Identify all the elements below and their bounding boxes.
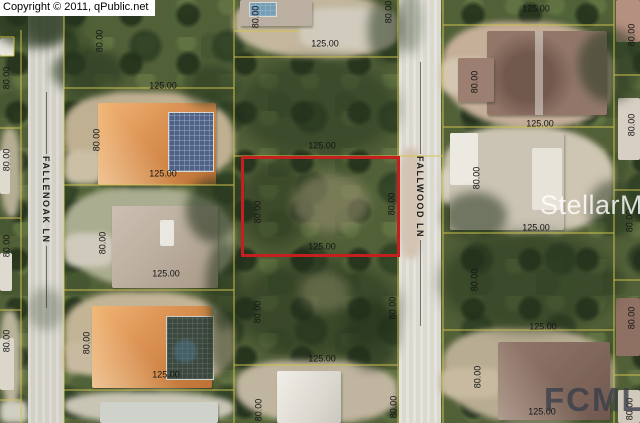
dimension-label: 80.00 (473, 167, 482, 190)
dimension-label: 80.00 (390, 396, 399, 419)
dimension-label: 80.00 (3, 330, 12, 353)
dimension-label: 125.00 (308, 243, 336, 252)
dimension-label: 125.00 (529, 323, 557, 332)
dimension-label: 125.00 (152, 270, 180, 279)
dimension-label: 125.00 (522, 224, 550, 233)
dimension-label: 80.00 (254, 301, 263, 324)
dimension-label: 125.00 (522, 5, 550, 14)
dimension-label: 80.00 (96, 30, 105, 53)
road-centerline (46, 92, 47, 154)
house-roof (100, 402, 218, 423)
dimension-label: 80.00 (3, 149, 12, 172)
tree-canopy (182, 64, 240, 106)
dimension-label: 80.00 (99, 232, 108, 255)
dimension-label: 125.00 (149, 170, 177, 179)
road-centerline (420, 240, 421, 326)
dimension-label: 80.00 (83, 332, 92, 355)
street-fallenoak: FALLENOAK LN (40, 92, 52, 308)
tree-canopy (52, 48, 124, 94)
stellar-mls-watermark: StellarMLS (540, 190, 640, 221)
dimension-label: 125.00 (149, 82, 177, 91)
driveway (0, 400, 28, 423)
dimension-label: 125.00 (311, 40, 339, 49)
dimension-label: 80.00 (628, 114, 637, 137)
walkway (535, 31, 543, 115)
dimension-label: 80.00 (471, 71, 480, 94)
dimension-label: 80.00 (3, 235, 12, 258)
copyright-notice: Copyright © 2011, qPublic.net (0, 0, 155, 16)
dimension-label: 125.00 (526, 120, 554, 129)
tree-canopy (443, 192, 507, 240)
dimension-label: 80.00 (628, 24, 637, 47)
driveway (64, 150, 102, 184)
pool-enclosure (168, 112, 214, 172)
dimension-label: 80.00 (388, 193, 397, 216)
street-label-fallwood: FALLWOOD LN (415, 156, 425, 238)
dimension-label: 125.00 (152, 371, 180, 380)
road-centerline (46, 246, 47, 308)
dimension-label: 80.00 (389, 297, 398, 320)
dimension-label: 80.00 (93, 129, 102, 152)
dimension-label: 80.00 (474, 366, 483, 389)
gis-aerial-map-viewport: 125.00125.00125.00125.00125.00125.00125.… (0, 0, 640, 423)
lanai (160, 220, 174, 246)
street-label-fallenoak: FALLENOAK LN (41, 156, 51, 244)
dimension-label: 80.00 (255, 399, 264, 422)
dimension-label: 125.00 (308, 355, 336, 364)
dimension-label: 80.00 (254, 201, 263, 224)
driveway (440, 368, 502, 398)
dimension-label: 80.00 (385, 1, 394, 24)
house-roof (0, 253, 12, 291)
house-roof (277, 371, 341, 423)
dimension-label: 80.00 (252, 6, 261, 29)
fcmls-watermark: FCMLS (544, 381, 640, 419)
tree-canopy (440, 232, 618, 332)
street-fallwood: FALLWOOD LN (414, 62, 426, 326)
dimension-label: 80.00 (471, 269, 480, 292)
dimension-label: 80.00 (3, 67, 12, 90)
tree-canopy (210, 306, 238, 376)
dimension-label: 125.00 (308, 142, 336, 151)
road-centerline (420, 62, 421, 154)
clearing (300, 272, 350, 312)
dimension-label: 80.00 (628, 307, 637, 330)
tree-canopy (186, 178, 240, 242)
